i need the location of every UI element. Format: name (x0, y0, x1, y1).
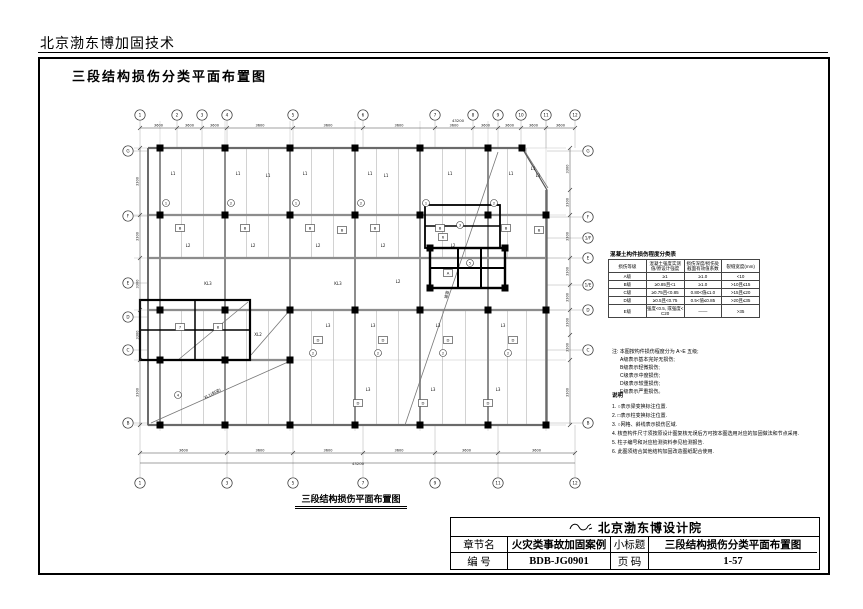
circled-label-text: 2 (507, 351, 509, 355)
beam-label: L3 (496, 387, 501, 392)
table-cell: ≥1.0 (684, 273, 722, 281)
column-marker (287, 357, 294, 364)
table-cell: 0.5<值≤0.85 (684, 297, 722, 305)
table-header-cell: 损伤深度/损伤处截面有效值系数 (684, 260, 722, 273)
beam-label: L3 (501, 323, 506, 328)
column-marker (417, 422, 424, 429)
dim-value: 3600 (481, 124, 490, 128)
boxed-label-text: D (382, 338, 385, 343)
axis-bubble-label: 1/F (585, 236, 592, 241)
text-line: B级表示轻微损伤; (612, 364, 699, 372)
floor-plan-svg: 3600360036003600360036003600360036003600… (118, 95, 618, 527)
beam-label: XL1(斜梁) (202, 386, 222, 400)
beam-label: L2 (396, 279, 401, 284)
dim-value: 3600 (256, 449, 265, 453)
beam-label: XL2 (254, 332, 262, 337)
beam-label: L3 (431, 387, 436, 392)
axis-bubble-label: 7 (362, 481, 365, 486)
beam-label: L2 (316, 243, 321, 248)
beam-label: L1 (536, 173, 541, 178)
axis-bubble-label: 5 (292, 113, 295, 118)
dim-value: 3300 (566, 293, 570, 302)
boxed-label-text: B (505, 226, 508, 231)
table-cell: ≥0.75且<0.85 (646, 289, 684, 297)
column-marker (427, 245, 434, 252)
dim-value: 3300 (566, 318, 570, 327)
table-cell: >35 (722, 305, 760, 318)
dim-value: 3600 (395, 124, 404, 128)
table-cell: C级 (609, 289, 647, 297)
table-cell: 0.80<值≤1.0 (684, 289, 722, 297)
axis-bubble-label: 5 (292, 481, 295, 486)
axis-bubble-label: 1 (139, 113, 142, 118)
beam-label: L1 (236, 171, 241, 176)
table-cell: B级 (609, 281, 647, 289)
text-line: 5. 柱子编号和对应检测资料参见检测报告. (612, 439, 799, 448)
column-marker (157, 212, 164, 219)
column-marker (157, 307, 164, 314)
column-marker (157, 145, 164, 152)
text-line: C级表示中度损伤; (612, 372, 699, 380)
dim-value: 3300 (566, 267, 570, 276)
dim-value: 3600 (529, 124, 538, 128)
axis-bubble-label: 7 (434, 113, 437, 118)
beam-label: L1 (368, 171, 373, 176)
dim-value: 3600 (532, 449, 541, 453)
table-cell: ≥0.5且<0.75 (646, 297, 684, 305)
table-cell: —— (684, 305, 722, 318)
beam-label: L1 (448, 171, 453, 176)
table-header-cell: 混凝土强度实测值/原设计强度 (646, 260, 684, 273)
column-marker (417, 307, 424, 314)
subtitle-label: 小标题 (611, 537, 649, 553)
column-marker (222, 357, 229, 364)
axis-bubble-label: 12 (572, 481, 578, 486)
damage-classification-table: 损伤等级混凝土强度实测值/原设计强度损伤深度/损伤处截面有效值系数裂缝宽度(mm… (608, 259, 760, 318)
column-marker (427, 285, 434, 292)
title-block-row-2: 编 号 BDB-JG0901 页 码 1-57 (451, 553, 819, 569)
boxed-label-text: B (309, 226, 312, 231)
beam-label: L2 (186, 243, 191, 248)
column-marker (287, 422, 294, 429)
dim-value: 3300 (136, 280, 140, 289)
dim-value: 3600 (324, 124, 333, 128)
beam-label: L1 (171, 171, 176, 176)
table-row: D级≥0.5且<0.750.5<值≤0.85>20且≤35 (609, 297, 760, 305)
boxed-label-text: D (422, 401, 425, 406)
dim-value: 3600 (556, 124, 565, 128)
axis-bubble-label: 10 (518, 113, 524, 118)
circled-label-text: 3 (459, 223, 461, 227)
dim-value: 3600 (210, 124, 219, 128)
dim-overall: 43200 (352, 461, 365, 466)
boxed-label-text: B (538, 228, 541, 233)
legend-block: 说明 1. ○表示梁变换标注位置.2. □表示柱变换标注位置.3. ○网格、斜线… (612, 392, 799, 457)
column-marker (157, 422, 164, 429)
axis-bubble-label: 9 (497, 113, 500, 118)
beam-label: L2 (381, 243, 386, 248)
dim-value: 3600 (505, 124, 514, 128)
axis-bubble-label: E (127, 281, 130, 286)
boxed-label-text: D (447, 338, 450, 343)
table-header-cell: 损伤等级 (609, 260, 647, 273)
table-header-row: 损伤等级混凝土强度实测值/原设计强度损伤深度/损伤处截面有效值系数裂缝宽度(mm… (609, 260, 760, 273)
column-marker (157, 357, 164, 364)
beam-label: KL3 (204, 281, 212, 286)
column-marker (287, 307, 294, 314)
dim-value: 3300 (136, 232, 140, 241)
column-marker (485, 212, 492, 219)
column-marker (352, 422, 359, 429)
sheet-title: 三段结构损伤分类平面布置图 (72, 66, 267, 85)
number-label: 编 号 (451, 553, 508, 569)
circled-label-text: 2 (230, 201, 232, 205)
table-row: A级≥1≥1.0<10 (609, 273, 760, 281)
dim-value: 3300 (566, 198, 570, 207)
column-marker (352, 145, 359, 152)
table-row: B级≥0.85且<1≥1.0>10且≤15 (609, 281, 760, 289)
circled-label-text: 2 (442, 351, 444, 355)
column-marker (287, 145, 294, 152)
table-cell: >15且≤20 (722, 289, 760, 297)
table-cell: A级 (609, 273, 647, 281)
column-marker (352, 307, 359, 314)
beam-label: L3 (371, 323, 376, 328)
column-marker (485, 422, 492, 429)
axis-bubble-label: B (127, 421, 130, 426)
boxed-label-text: D (357, 401, 360, 406)
text-line: 3. ○网格、斜线表示损伤区域. (612, 421, 799, 430)
axis-bubble-label: 6 (362, 113, 365, 118)
beam-label: L1 (509, 171, 514, 176)
legend-items: 1. ○表示梁变换标注位置.2. □表示柱变换标注位置.3. ○网格、斜线表示损… (612, 403, 799, 457)
dim-value: 3300 (566, 232, 570, 241)
text-line: 1. ○表示梁变换标注位置. (612, 403, 799, 412)
dim-value: 3600 (154, 124, 163, 128)
dim-value: 3300 (136, 177, 140, 186)
header-divider (38, 52, 828, 53)
boxed-label-text: A (447, 271, 450, 276)
text-line: 4. 核查构件尺寸须按原设计图复核无误后方可按本图选用对应的加固做法和节点采用. (612, 430, 799, 439)
notes-lead: 注: 本图按构件损伤程度分为 A~E 五级; (612, 348, 699, 356)
beam-label: L1 (531, 166, 536, 171)
dim-value: 3600 (256, 124, 265, 128)
circled-label-text: 2 (312, 351, 314, 355)
boxed-label-text: B (244, 226, 247, 231)
boxed-label-text: B (439, 226, 442, 231)
column-marker (287, 212, 294, 219)
circled-label-text: 2 (360, 201, 362, 205)
circled-label-text: 1 (165, 201, 167, 205)
beam-label: L1 (266, 173, 271, 178)
circled-label-text: 1 (425, 201, 427, 205)
table-cell: ≥1 (646, 273, 684, 281)
axis-bubble-label: C (127, 348, 130, 353)
axis-bubble-label: C (587, 348, 590, 353)
page-value: 1-57 (649, 553, 817, 569)
dim-value: 3600 (179, 449, 188, 453)
column-marker (417, 212, 424, 219)
table-cell: D级 (609, 297, 647, 305)
notes-block: 注: 本图按构件损伤程度分为 A~E 五级; A级表示基本完好无损伤;B级表示轻… (612, 348, 699, 396)
column-marker (485, 307, 492, 314)
text-line: 6. 此图须结合其他结构加固改造图纸配合使用. (612, 448, 799, 457)
title-block: 北京渤东博设计院 章节名 火灾类事故加固案例 小标题 三段结构损伤分类平面布置图… (450, 517, 820, 570)
text-line: D级表示较重损伤; (612, 380, 699, 388)
column-marker (417, 145, 424, 152)
axis-bubble-label: 12 (572, 113, 578, 118)
dim-value: 3600 (462, 449, 471, 453)
number-value: BDB-JG0901 (508, 553, 611, 569)
company-logo-icon (568, 521, 594, 533)
title-block-company-row: 北京渤东博设计院 (451, 518, 819, 537)
column-marker (543, 422, 550, 429)
axis-bubble-label: 4 (226, 113, 229, 118)
diagonal-line (524, 150, 548, 188)
dim-value: 3600 (324, 449, 333, 453)
dim-value: 3300 (566, 343, 570, 352)
column-marker (543, 307, 550, 314)
table-cell: >10且≤15 (722, 281, 760, 289)
chapter-label: 章节名 (451, 537, 508, 553)
table-cell: 强度<0.5, 或强度<C20 (646, 305, 684, 318)
circled-label-text: 2 (493, 201, 495, 205)
circled-label-text: 1 (295, 201, 297, 205)
column-marker (352, 212, 359, 219)
axis-bubble-label: 11 (495, 481, 501, 486)
axis-bubble-label: 2 (176, 113, 179, 118)
dim-value: 3300 (566, 388, 570, 397)
classification-table-title: 混凝土构件损伤程度分类表 (610, 250, 676, 258)
table-cell: <10 (722, 273, 760, 281)
circled-label-text: 5 (469, 261, 471, 265)
boxed-label-text: B (341, 228, 344, 233)
axis-bubble-label: 3 (201, 113, 204, 118)
axis-bubble-label: 9 (434, 481, 437, 486)
dim-value: 3300 (136, 331, 140, 340)
axis-bubble-label: B (587, 421, 590, 426)
boxed-label-text: B (179, 226, 182, 231)
axis-bubble-label: G (586, 149, 589, 154)
boxed-label-text: D (512, 338, 515, 343)
plan-caption: 三段结构损伤平面布置图 (295, 492, 407, 509)
column-marker (502, 285, 509, 292)
dim-value: 3300 (136, 388, 140, 397)
company-header: 北京渤东博加固技术 (40, 33, 175, 53)
text-line: 2. □表示柱变换标注位置. (612, 412, 799, 421)
axis-bubble-label: G (126, 149, 129, 154)
text-line: A级表示基本完好无损伤; (612, 356, 699, 364)
drawing-sheet-page: 北京渤东博加固技术 三段结构损伤分类平面布置图 3600360036003600… (0, 0, 863, 609)
beam-label: L1 (303, 171, 308, 176)
dim-overall: 43200 (452, 118, 465, 123)
column-marker (502, 245, 509, 252)
page-label: 页 码 (611, 553, 649, 569)
column-marker (543, 212, 550, 219)
axis-bubble-label: 3 (226, 481, 229, 486)
axis-bubble-label: 1/E (585, 283, 592, 288)
beam-label: KL3 (334, 281, 342, 286)
column-marker (519, 145, 526, 152)
floor-plan-drawing: 3600360036003600360036003600360036003600… (118, 95, 618, 527)
column-marker (222, 145, 229, 152)
boxed-label-text: D (487, 401, 490, 406)
table-cell: ≥1.0 (684, 281, 722, 289)
circled-label-text: 2 (377, 351, 379, 355)
boxed-label-text: B (374, 226, 377, 231)
beam-label: L2 (251, 243, 256, 248)
axis-bubble-label: 8 (472, 113, 475, 118)
notes-items: A级表示基本完好无损伤;B级表示轻微损伤;C级表示中度损伤;D级表示较重损伤;E… (612, 356, 699, 396)
title-block-row-1: 章节名 火灾类事故加固案例 小标题 三段结构损伤分类平面布置图 (451, 537, 819, 553)
axis-bubble-label: D (126, 315, 129, 320)
beam-label: L3 (436, 323, 441, 328)
subtitle-value: 三段结构损伤分类平面布置图 (649, 537, 817, 553)
beam-label: L2 (451, 243, 456, 248)
beam-label: 坡道 (442, 290, 450, 299)
beam-label: L3 (326, 323, 331, 328)
table-row: C级≥0.75且<0.850.80<值≤1.0>15且≤20 (609, 289, 760, 297)
axis-bubble-label: E (587, 256, 590, 261)
table-cell: >20且≤35 (722, 297, 760, 305)
beam-label: L3 (366, 387, 371, 392)
axis-bubble-label: 1 (139, 481, 142, 486)
column-marker (222, 307, 229, 314)
column-marker (222, 422, 229, 429)
dim-value: 3300 (566, 165, 570, 174)
axis-bubble-label: D (586, 308, 589, 313)
dim-value: 3600 (185, 124, 194, 128)
table-cell: E级 (609, 305, 647, 318)
dim-value: 3600 (395, 449, 404, 453)
dim-value: 3600 (450, 124, 459, 128)
column-marker (222, 212, 229, 219)
axis-bubble-label: 11 (543, 113, 549, 118)
company-name: 北京渤东博设计院 (598, 519, 702, 536)
boxed-label-text: D (317, 338, 320, 343)
table-header-cell: 裂缝宽度(mm) (722, 260, 760, 273)
chapter-value: 火灾类事故加固案例 (508, 537, 611, 553)
column-marker (485, 145, 492, 152)
legend-title: 说明 (612, 392, 799, 401)
table-cell: ≥0.85且<1 (646, 281, 684, 289)
table-row: E级强度<0.5, 或强度<C20——>35 (609, 305, 760, 318)
beam-label: L1 (384, 173, 389, 178)
